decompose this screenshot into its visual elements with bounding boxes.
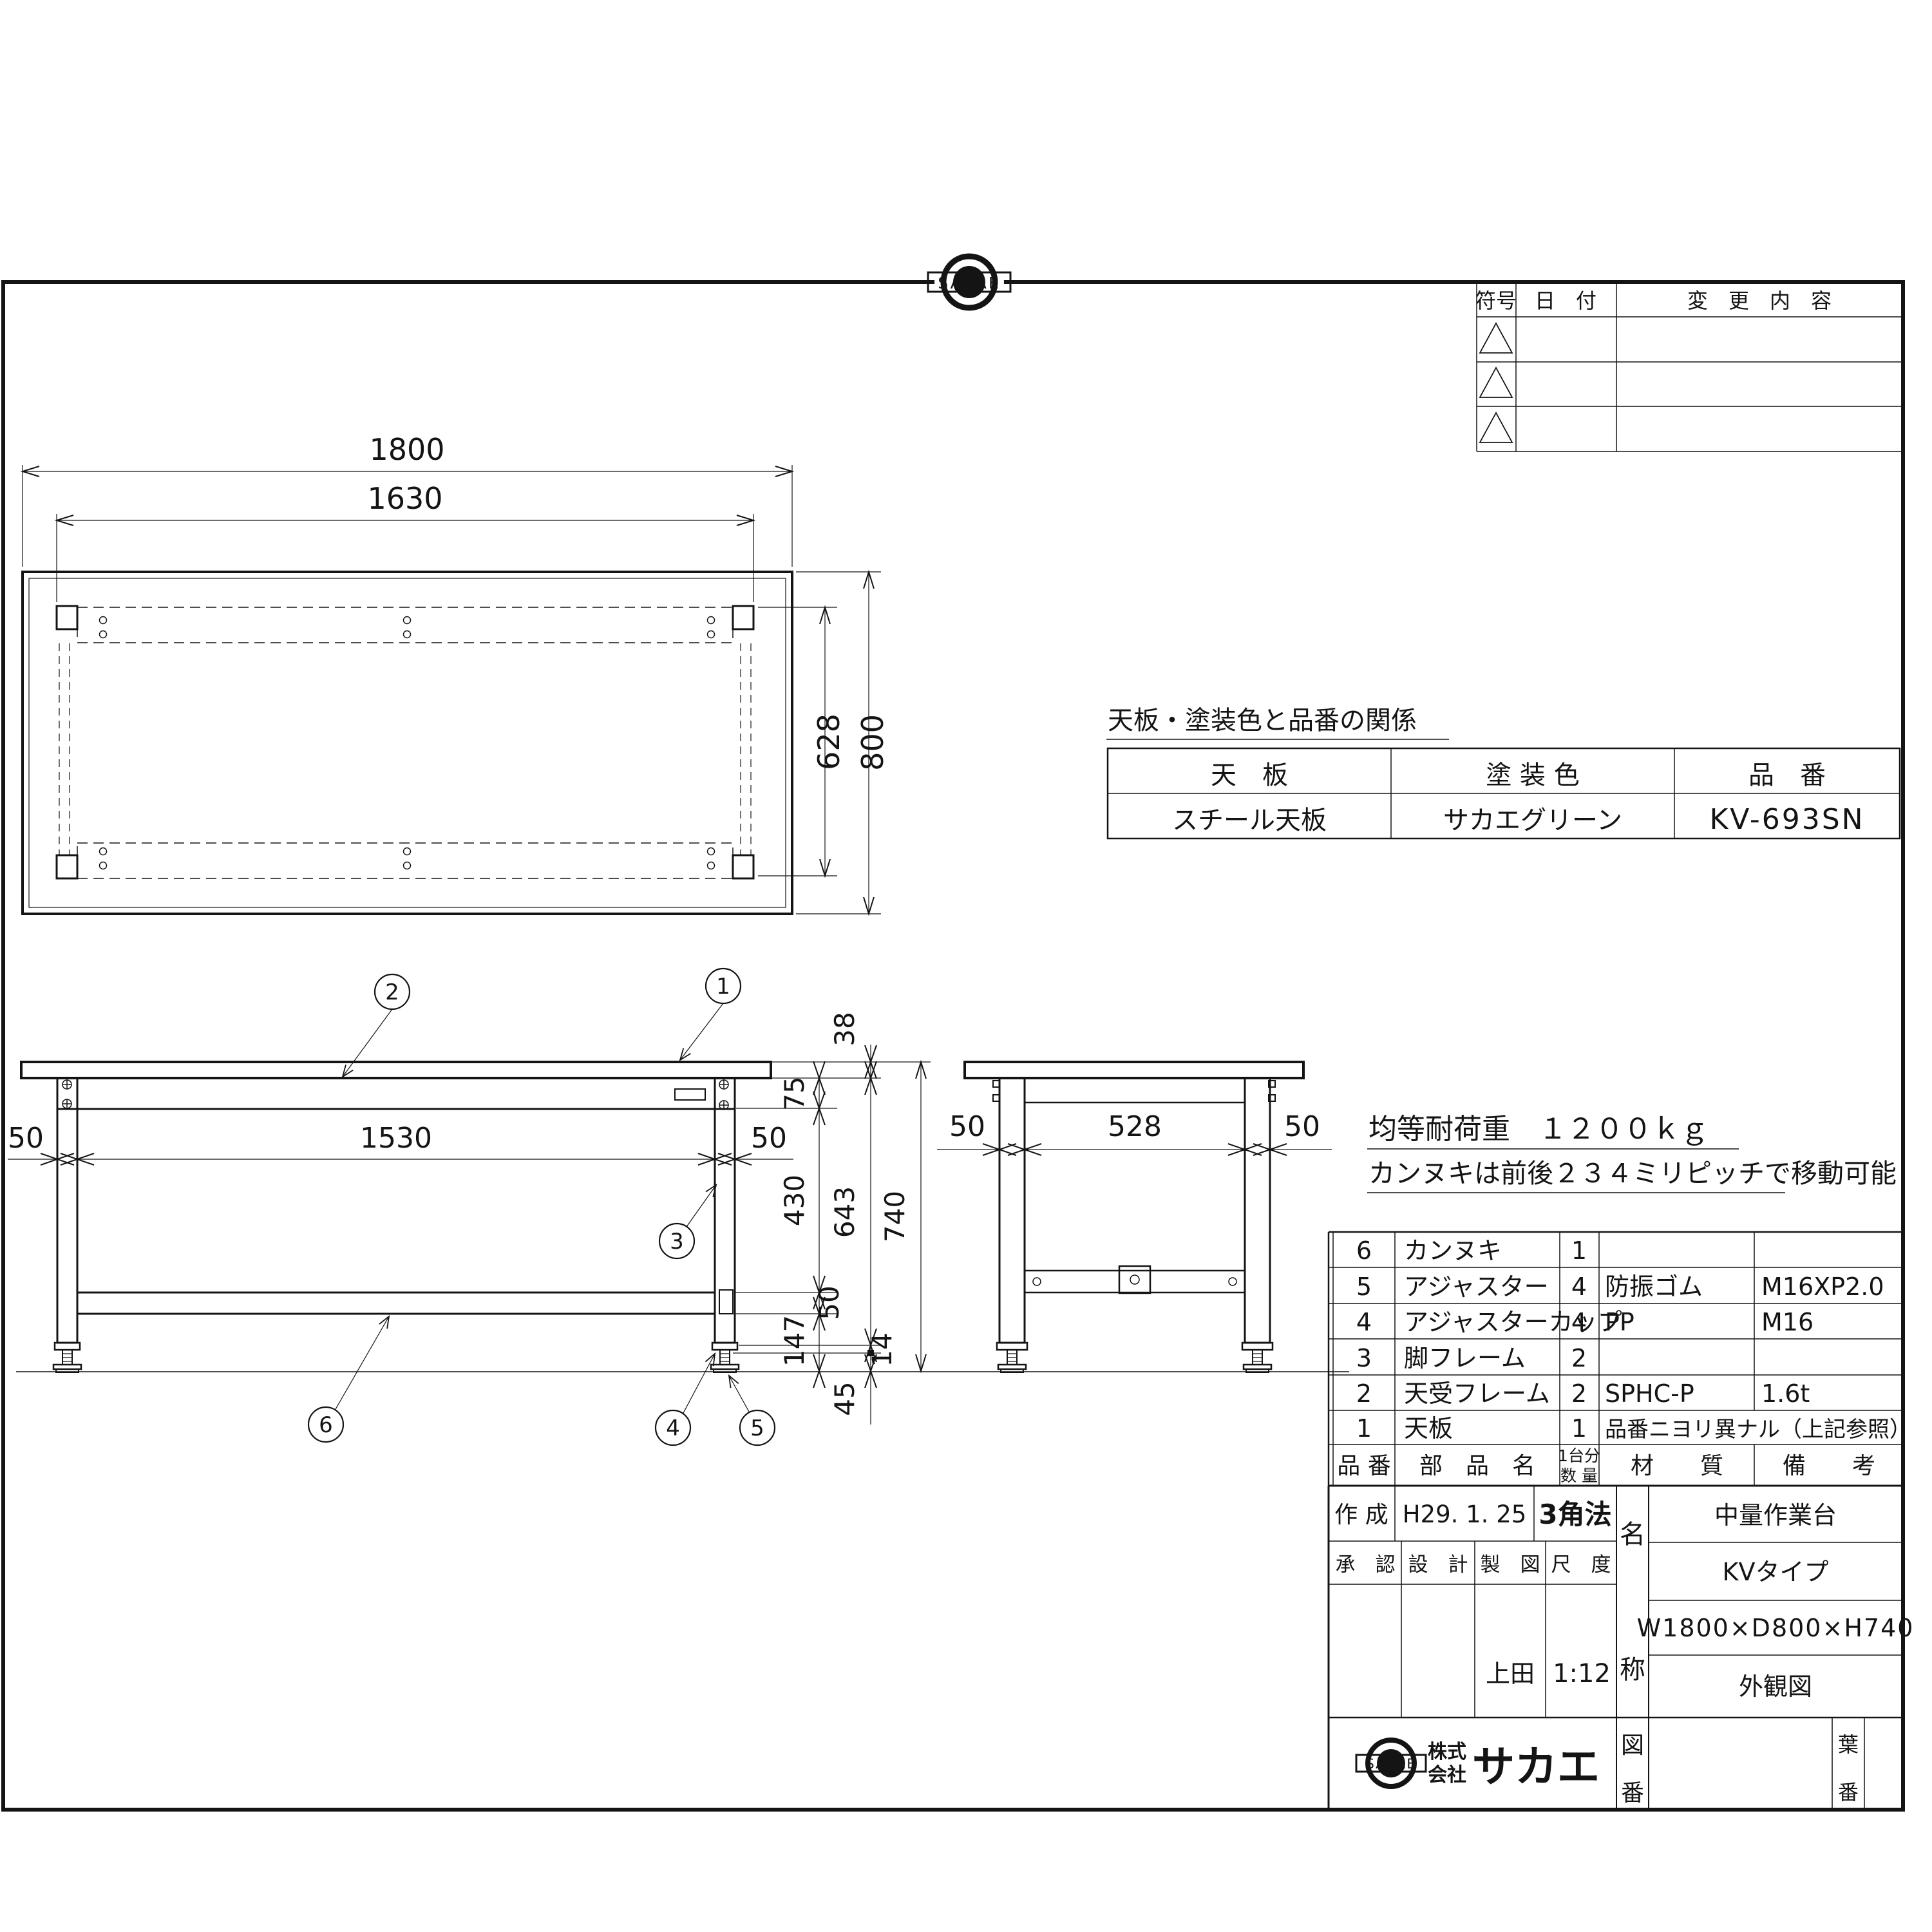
dim-front-75: 75: [779, 1076, 810, 1110]
part-remarks: M16: [1761, 1308, 1814, 1336]
note-pitch: カンヌキは前後２３４ミリピッチで移動可能: [1368, 1158, 1897, 1189]
dim-front-50R: 50: [751, 1122, 787, 1155]
dim-front-643: 643: [829, 1186, 860, 1238]
revision-col-date: 日 付: [1535, 289, 1596, 313]
part-name: 脚フレーム: [1404, 1344, 1526, 1372]
name-label-1: 名: [1620, 1520, 1645, 1549]
spec-col-top: 天 板: [1211, 761, 1288, 790]
dim-side-50L: 50: [949, 1110, 985, 1143]
parts-header-qty1: 1台分: [1558, 1446, 1600, 1465]
dim-side-50R: 50: [1284, 1110, 1320, 1143]
sakae-logo-top: SAKAE: [928, 247, 1010, 317]
dim-front-50L: 50: [8, 1122, 44, 1155]
side-bolts: [993, 1081, 1275, 1101]
sheet-no-label-2: 番: [1838, 1780, 1859, 1804]
part-qty: 4: [1571, 1308, 1587, 1336]
design-label: 設 計: [1408, 1553, 1468, 1577]
sheet-border: [3, 282, 1903, 1810]
logo-text: SAKAE: [938, 274, 1000, 292]
draft-value: 上田: [1486, 1660, 1535, 1688]
part-remarks: 1.6t: [1761, 1379, 1810, 1408]
dim-plan-1800: 1800: [369, 432, 444, 467]
spec-val-top: スチール天板: [1172, 806, 1327, 835]
dim-front-740: 740: [879, 1191, 911, 1242]
created-label: 作 成: [1334, 1502, 1388, 1528]
side-lower-rail: [1025, 1271, 1245, 1293]
plan-tabletop-outline: [23, 572, 792, 914]
side-leg-rear: [1245, 1078, 1270, 1343]
dim-plan-1630: 1630: [367, 481, 442, 516]
parts-header-no: 品 番: [1337, 1453, 1390, 1479]
dim-plan-800: 800: [855, 714, 890, 771]
spec-col-color: 塗 装 色: [1486, 761, 1579, 790]
balloon-4: 4: [666, 1416, 680, 1441]
approved-label: 承 認: [1336, 1553, 1396, 1577]
notes: 均等耐荷重 １２００ｋｇ カンヌキは前後２３４ミリピッチで移動可能: [1367, 1113, 1897, 1193]
spec-val-partno: KV-693SN: [1709, 803, 1864, 836]
part-name: 天板: [1404, 1414, 1453, 1443]
plan-leg-bl: [57, 855, 77, 878]
plan-view: 1800 1630 628 800: [23, 432, 890, 914]
spec-table: 天板・塗装色と品番の関係 天 板 塗 装 色 品 番 スチール天板 サカエグリー…: [1106, 706, 1900, 838]
part-name: アジャスターカップ: [1404, 1308, 1622, 1336]
note-load: 均等耐荷重 １２００ｋｇ: [1368, 1113, 1709, 1146]
part-qty: 2: [1571, 1379, 1587, 1408]
sakae-logo-bottom: SAKAE: [1356, 1740, 1426, 1786]
dim-side-528: 528: [1108, 1110, 1162, 1143]
revision-triangle-2: [1480, 368, 1512, 397]
revision-triangle-1: [1480, 323, 1512, 353]
revision-col-change: 変 更 内 容: [1687, 289, 1832, 313]
parts-table: 6 カンヌキ 1 5 アジャスター 4 防振ゴム M16XP2.0 4 アジャス…: [1329, 1232, 1911, 1486]
revision-col-symbol: 符号: [1475, 289, 1517, 313]
part-qty: 1: [1571, 1236, 1587, 1265]
drawing-kind: 外観図: [1739, 1672, 1812, 1701]
spec-col-partno: 品 番: [1748, 761, 1826, 790]
balloon-5: 5: [750, 1416, 764, 1441]
company-prefix-2: 会社: [1428, 1764, 1466, 1786]
front-leg-right: [715, 1078, 735, 1343]
front-kannuki-bar: [77, 1293, 715, 1314]
part-no: 1: [1356, 1414, 1372, 1443]
balloon-2: 2: [385, 980, 399, 1005]
part-qty: 1: [1571, 1414, 1587, 1443]
cad-canvas: SAKAE 符号 日 付 変 更 内 容: [0, 0, 1932, 1932]
front-adjuster-left: [53, 1343, 81, 1372]
part-material: PP: [1605, 1308, 1634, 1336]
revision-triangle-3: [1480, 413, 1512, 442]
side-tabletop: [965, 1062, 1303, 1078]
dim-front-50k: 50: [813, 1285, 845, 1320]
parts-header-name: 部 品 名: [1419, 1453, 1535, 1479]
balloon-6: 6: [319, 1412, 333, 1438]
part-no: 4: [1356, 1308, 1372, 1336]
side-leg-front: [999, 1078, 1025, 1343]
dim-front-147: 147: [779, 1315, 810, 1367]
part-qty: 4: [1571, 1273, 1587, 1301]
dim-front-1530: 1530: [360, 1122, 432, 1155]
scale-label: 尺 度: [1551, 1553, 1611, 1577]
part-material: 品番ニヨリ異ナル（上記参照）: [1605, 1417, 1911, 1443]
balloon-callouts: 1 2 3 4 5 6: [308, 969, 775, 1445]
logo-text: SAKAE: [1365, 1756, 1416, 1772]
plan-leg-hidden-lines: [59, 643, 751, 855]
company-name: サカエ: [1472, 1742, 1600, 1792]
spec-title: 天板・塗装色と品番の関係: [1108, 706, 1417, 735]
front-apron-bolts: [62, 1080, 728, 1110]
part-material: 防振ゴム: [1605, 1273, 1703, 1301]
company-prefix-1: 株式: [1428, 1741, 1466, 1763]
plan-leg-br: [733, 855, 753, 878]
drawing-no-label-2: 番: [1621, 1780, 1644, 1806]
name-label-2: 称: [1620, 1655, 1645, 1685]
dim-front-45: 45: [829, 1381, 860, 1416]
front-leg-left: [57, 1078, 77, 1343]
plan-leg-tl: [57, 606, 77, 629]
balloon-3: 3: [670, 1229, 684, 1255]
created-value: H29. 1. 25: [1403, 1501, 1527, 1528]
front-tabletop: [21, 1062, 771, 1078]
sheet-no-label-1: 葉: [1838, 1732, 1859, 1757]
dim-plan-628: 628: [811, 714, 846, 770]
title-block: 作 成 H29. 1. 25 3角法 承 認 設 計 製 図 尺 度 上田 1:…: [1329, 1486, 1914, 1810]
part-remarks: M16XP2.0: [1761, 1273, 1884, 1301]
dim-front-430: 430: [779, 1175, 810, 1226]
spec-val-color: サカエグリーン: [1443, 806, 1622, 835]
dim-front-14: 14: [866, 1332, 898, 1367]
part-qty: 2: [1571, 1344, 1587, 1372]
projection-method: 3角法: [1539, 1499, 1611, 1530]
front-view: 50 1530 50 75 430 50 147 38 643 14 45 74…: [8, 1012, 931, 1425]
draft-label: 製 図: [1481, 1553, 1540, 1577]
part-no: 3: [1356, 1344, 1372, 1372]
part-no: 6: [1356, 1236, 1372, 1265]
plan-tabletop-inner-edge: [29, 578, 786, 907]
scale-value: 1:12: [1553, 1659, 1611, 1689]
side-adjuster-front: [997, 1343, 1027, 1372]
side-view: 50 528 50: [937, 1062, 1332, 1372]
part-no: 5: [1356, 1273, 1372, 1301]
revision-table: 符号 日 付 変 更 内 容: [1475, 282, 1903, 451]
product-size: W1800×D800×H740: [1637, 1614, 1915, 1642]
plan-holes: [100, 617, 715, 869]
part-name: アジャスター: [1404, 1273, 1549, 1301]
parts-header-remarks: 備 考: [1783, 1453, 1875, 1479]
parts-header-qty2: 数 量: [1560, 1466, 1598, 1485]
part-name: 天受フレーム: [1404, 1379, 1550, 1408]
part-material: SPHC-P: [1605, 1379, 1694, 1408]
plan-leg-tr: [733, 606, 753, 629]
drawing-sheet: SAKAE 符号 日 付 変 更 内 容: [0, 0, 1932, 1932]
parts-header-material: 材 質: [1631, 1453, 1723, 1479]
part-name: カンヌキ: [1404, 1236, 1502, 1265]
balloon-1: 1: [716, 974, 730, 999]
side-adjuster-rear: [1242, 1343, 1273, 1372]
product-series: KVタイプ: [1723, 1558, 1829, 1586]
front-adjuster-right: [711, 1343, 739, 1372]
drawing-no-label-1: 図: [1621, 1732, 1644, 1759]
part-no: 2: [1356, 1379, 1372, 1408]
product-type: 中量作業台: [1714, 1501, 1837, 1529]
front-apron-slot: [675, 1089, 705, 1100]
dim-front-38: 38: [829, 1012, 860, 1046]
